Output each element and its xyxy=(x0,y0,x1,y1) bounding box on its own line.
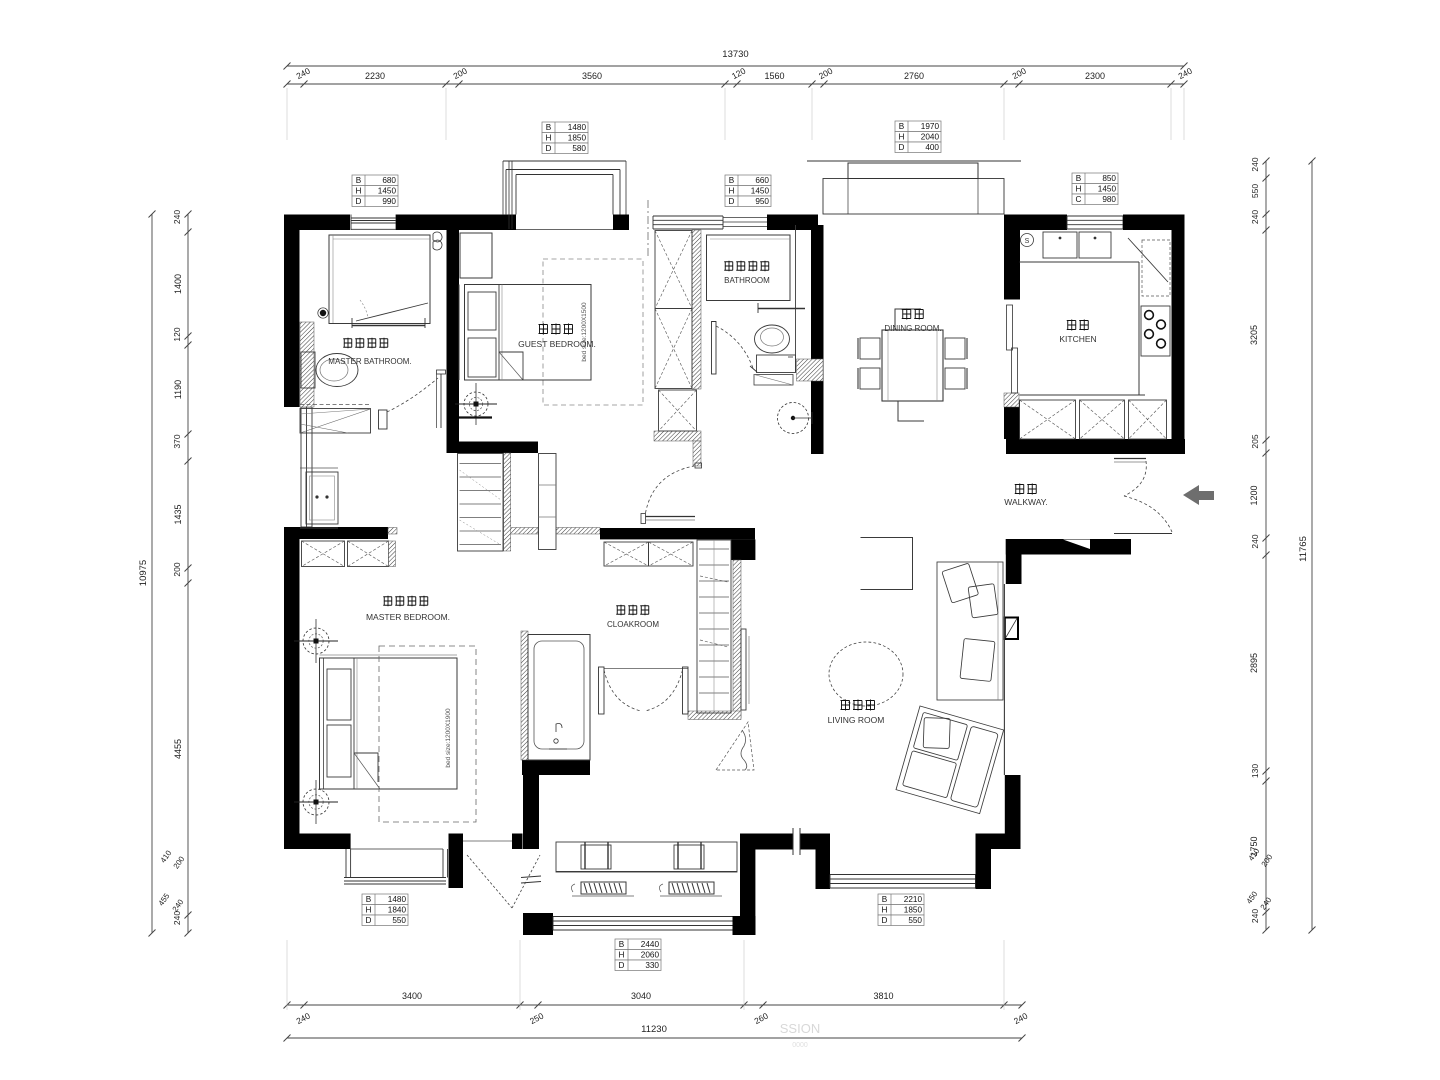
svg-text:D: D xyxy=(546,144,552,153)
svg-text:1850: 1850 xyxy=(568,133,587,142)
svg-text:1480: 1480 xyxy=(568,123,587,132)
svg-text:120: 120 xyxy=(172,327,182,341)
svg-text:1450: 1450 xyxy=(1098,184,1117,193)
svg-text:1450: 1450 xyxy=(751,186,770,195)
svg-text:3040: 3040 xyxy=(631,991,651,1001)
svg-text:B: B xyxy=(619,940,625,949)
svg-text:1190: 1190 xyxy=(173,380,183,399)
svg-text:MASTER BEDROOM.: MASTER BEDROOM. xyxy=(366,612,450,622)
svg-text:1850: 1850 xyxy=(904,905,923,914)
svg-text:240: 240 xyxy=(1250,210,1260,224)
svg-text:D: D xyxy=(356,197,362,206)
svg-text:2230: 2230 xyxy=(365,71,385,81)
svg-text:2440: 2440 xyxy=(641,940,660,949)
svg-text:DINING ROOM.: DINING ROOM. xyxy=(884,324,941,333)
svg-text:950: 950 xyxy=(755,197,769,206)
svg-text:1200: 1200 xyxy=(1249,485,1259,505)
svg-text:990: 990 xyxy=(382,197,396,206)
svg-text:550: 550 xyxy=(392,916,406,925)
svg-text:2060: 2060 xyxy=(641,950,660,959)
svg-text:3810: 3810 xyxy=(873,991,893,1001)
svg-text:C: C xyxy=(1076,195,1082,204)
svg-text:B: B xyxy=(899,122,905,131)
svg-text:240: 240 xyxy=(1250,157,1260,171)
svg-text:200: 200 xyxy=(172,562,182,576)
svg-text:330: 330 xyxy=(645,961,659,970)
svg-text:4455: 4455 xyxy=(173,739,183,759)
svg-text:240: 240 xyxy=(1250,909,1260,923)
svg-text:2300: 2300 xyxy=(1085,71,1105,81)
svg-text:660: 660 xyxy=(755,176,769,185)
svg-text:D: D xyxy=(899,143,905,152)
svg-text:11765: 11765 xyxy=(1298,536,1309,562)
svg-text:MASTER BATHROOM.: MASTER BATHROOM. xyxy=(328,357,411,366)
svg-text:B: B xyxy=(546,123,552,132)
svg-text:KITCHEN: KITCHEN xyxy=(1059,334,1096,344)
svg-text:2210: 2210 xyxy=(904,895,923,904)
svg-text:B: B xyxy=(356,176,362,185)
svg-text:3560: 3560 xyxy=(582,71,602,81)
svg-text:240: 240 xyxy=(1250,534,1260,548)
svg-text:580: 580 xyxy=(572,144,586,153)
svg-text:D: D xyxy=(366,916,372,925)
svg-text:680: 680 xyxy=(382,176,396,185)
svg-text:B: B xyxy=(882,895,888,904)
svg-text:B: B xyxy=(1076,174,1082,183)
svg-text:1970: 1970 xyxy=(921,122,940,131)
svg-text:1480: 1480 xyxy=(388,895,407,904)
svg-text:H: H xyxy=(1076,184,1082,193)
svg-text:D: D xyxy=(619,961,625,970)
svg-text:bed size:1200X1500: bed size:1200X1500 xyxy=(581,302,588,362)
svg-text:10975: 10975 xyxy=(138,560,149,586)
svg-text:11230: 11230 xyxy=(641,1024,667,1035)
svg-text:H: H xyxy=(366,905,372,914)
svg-text:370: 370 xyxy=(172,434,182,448)
svg-text:S: S xyxy=(1025,238,1030,245)
svg-text:BATHROOM: BATHROOM xyxy=(724,276,770,285)
svg-text:B: B xyxy=(729,176,735,185)
svg-text:1435: 1435 xyxy=(173,504,183,524)
svg-text:130: 130 xyxy=(1250,764,1260,778)
svg-text:850: 850 xyxy=(1102,174,1116,183)
svg-text:H: H xyxy=(546,133,552,142)
svg-text:0000: 0000 xyxy=(792,1042,808,1049)
svg-text:GUEST BEDROOM.: GUEST BEDROOM. xyxy=(518,339,596,349)
svg-text:CLOAKROOM: CLOAKROOM xyxy=(607,620,659,629)
svg-text:1450: 1450 xyxy=(378,186,397,195)
svg-text:D: D xyxy=(729,197,735,206)
svg-text:H: H xyxy=(899,132,905,141)
svg-text:H: H xyxy=(729,186,735,195)
svg-text:980: 980 xyxy=(1102,195,1116,204)
svg-text:H: H xyxy=(619,950,625,959)
svg-text:SSION: SSION xyxy=(780,1021,820,1036)
svg-text:2040: 2040 xyxy=(921,132,940,141)
svg-text:2760: 2760 xyxy=(904,71,924,81)
svg-text:13730: 13730 xyxy=(722,49,748,60)
svg-text:bed size:1200X1900: bed size:1200X1900 xyxy=(445,708,452,768)
svg-text:205: 205 xyxy=(1250,434,1260,448)
svg-text:2895: 2895 xyxy=(1249,653,1259,673)
svg-text:H: H xyxy=(356,186,362,195)
svg-text:3400: 3400 xyxy=(402,991,422,1001)
svg-text:550: 550 xyxy=(1250,184,1260,198)
svg-text:LIVING ROOM: LIVING ROOM xyxy=(828,715,885,725)
svg-text:WALKWAY.: WALKWAY. xyxy=(1004,497,1047,507)
svg-text:1400: 1400 xyxy=(173,274,183,294)
svg-text:1560: 1560 xyxy=(764,71,784,81)
svg-text:550: 550 xyxy=(908,916,922,925)
svg-text:D: D xyxy=(882,916,888,925)
svg-text:400: 400 xyxy=(925,143,939,152)
svg-text:1840: 1840 xyxy=(388,905,407,914)
svg-text:240: 240 xyxy=(172,210,182,224)
svg-text:H: H xyxy=(882,905,888,914)
svg-text:3205: 3205 xyxy=(1249,325,1259,345)
svg-text:B: B xyxy=(366,895,372,904)
